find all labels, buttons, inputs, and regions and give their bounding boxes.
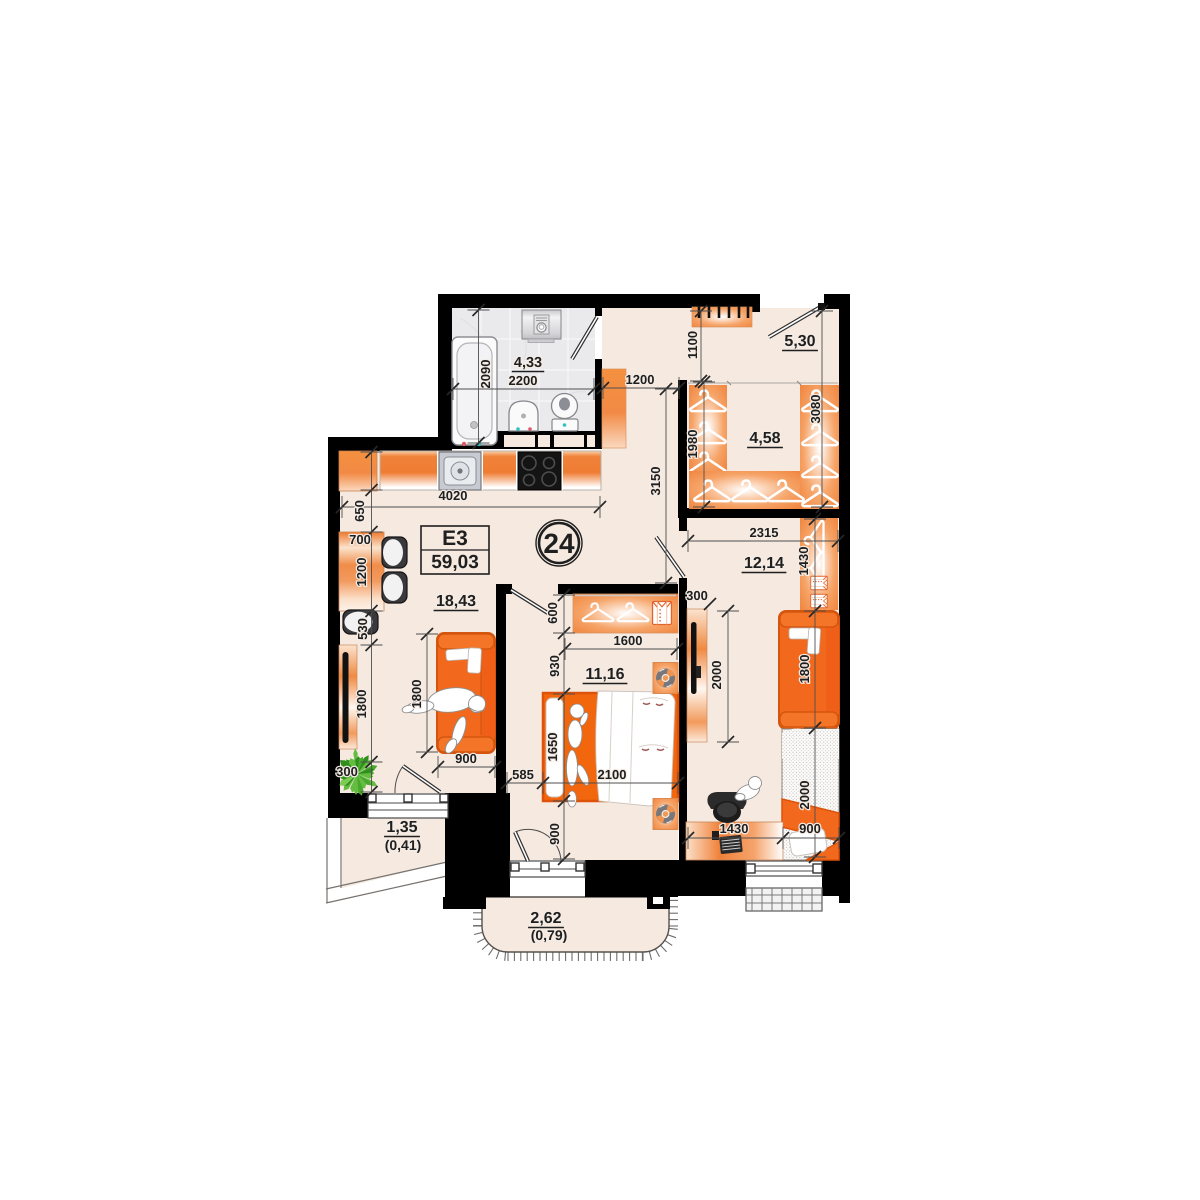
svg-text:2000: 2000	[797, 781, 812, 810]
svg-text:930: 930	[547, 655, 562, 677]
svg-text:530: 530	[355, 618, 370, 640]
svg-text:1200: 1200	[354, 558, 369, 587]
svg-text:1100: 1100	[685, 331, 700, 359]
svg-text:5,30: 5,30	[784, 333, 815, 350]
svg-text:600: 600	[545, 602, 560, 624]
svg-text:650: 650	[352, 500, 367, 522]
svg-text:1430: 1430	[796, 547, 811, 576]
svg-text:3080: 3080	[808, 395, 823, 424]
svg-text:900: 900	[455, 751, 477, 766]
svg-text:2100: 2100	[598, 767, 627, 782]
svg-text:2315: 2315	[750, 525, 779, 540]
svg-text:2090: 2090	[478, 360, 493, 389]
svg-text:700: 700	[349, 532, 371, 547]
svg-text:59,03: 59,03	[431, 552, 479, 573]
svg-text:1800: 1800	[409, 680, 424, 709]
svg-text:1,35: 1,35	[386, 819, 417, 836]
svg-text:12,14: 12,14	[744, 555, 784, 572]
svg-text:1430: 1430	[720, 821, 749, 836]
svg-text:1200: 1200	[626, 372, 655, 387]
svg-text:4020: 4020	[439, 488, 468, 503]
svg-text:E3: E3	[442, 527, 468, 550]
svg-text:24: 24	[543, 528, 575, 559]
svg-text:18,43: 18,43	[436, 593, 476, 610]
svg-text:900: 900	[799, 821, 821, 836]
svg-text:4,33: 4,33	[514, 355, 542, 371]
svg-text:(0,41): (0,41)	[385, 837, 422, 853]
svg-text:4,58: 4,58	[749, 430, 780, 447]
svg-text:900: 900	[547, 823, 562, 845]
svg-text:(0,79): (0,79)	[531, 927, 568, 943]
svg-text:300: 300	[686, 588, 708, 603]
svg-text:2200: 2200	[509, 373, 538, 388]
svg-text:300: 300	[336, 764, 358, 779]
svg-text:1650: 1650	[545, 733, 560, 762]
svg-text:11,16: 11,16	[585, 666, 624, 683]
svg-text:1980: 1980	[685, 430, 700, 459]
svg-text:2,62: 2,62	[530, 910, 561, 927]
svg-text:1600: 1600	[614, 633, 643, 648]
svg-text:3150: 3150	[648, 467, 663, 496]
svg-text:585: 585	[512, 767, 534, 782]
svg-text:1800: 1800	[354, 690, 369, 719]
svg-text:1800: 1800	[797, 655, 812, 684]
svg-text:2000: 2000	[709, 661, 724, 690]
